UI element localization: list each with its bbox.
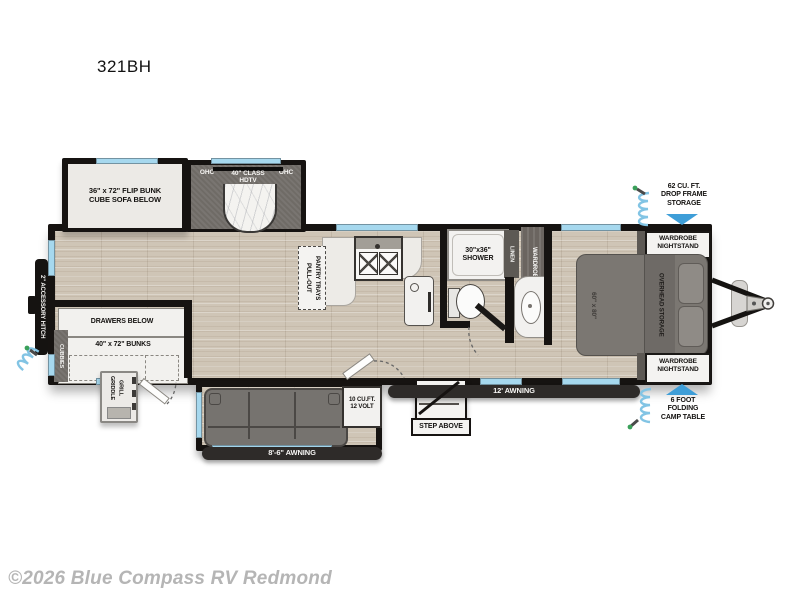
sofa xyxy=(204,388,348,447)
hitch-coupler xyxy=(747,296,772,311)
kitchen-appliance xyxy=(404,276,434,326)
sink-basin-right xyxy=(379,252,398,275)
drawers-label: DRAWERS BELOW xyxy=(91,318,153,326)
copyright-watermark: ©2026 Blue Compass RV Redmond xyxy=(8,568,332,590)
overhead-storage: OVERHEAD STORAGE xyxy=(644,255,675,355)
sofa-armrest xyxy=(209,393,221,405)
kitchen-sink xyxy=(354,236,403,281)
bath-wall-left xyxy=(440,231,447,327)
pantry: PULL-OUT PANTRY TRAYS xyxy=(298,246,326,310)
refrigerator: 10 CU.FT. 12 VOLT xyxy=(342,386,382,428)
bunkroom-wall-vertical xyxy=(184,300,192,378)
pillow-icon xyxy=(678,263,704,304)
pantry-label: PULL-OUT PANTRY TRAYS xyxy=(303,256,321,300)
step-above-tag: STEP ABOVE xyxy=(411,418,471,436)
vanity-drain-icon xyxy=(528,304,532,308)
appliance-dial-icon xyxy=(410,283,419,292)
overhead-storage-label: OVERHEAD STORAGE xyxy=(656,273,663,337)
propane-cover xyxy=(731,280,748,327)
accessory-hitch-bar: 2" ACCESSORY HITCH xyxy=(35,259,48,355)
shower: 30"x36" SHOWER xyxy=(447,229,509,281)
nightstand-trim-bottom xyxy=(637,353,645,380)
bunk-door-swing-arc xyxy=(167,382,176,404)
hitch-ball-icon xyxy=(763,298,774,309)
cubbies-cabinet: CUBBIES xyxy=(54,330,68,382)
bed-size: 60" x 80" xyxy=(585,275,601,335)
sink-basin-left xyxy=(359,252,378,275)
nightstand-trim-top xyxy=(637,231,645,255)
bunks-label: 40" x 72" BUNKS xyxy=(59,341,187,349)
accessory-hitch-label: 2" ACCESSORY HITCH xyxy=(38,275,45,339)
nightstand-bottom: WARDROBE NIGHTSTAND xyxy=(645,353,711,384)
bunk-divider xyxy=(145,355,147,379)
coil-hose-icon xyxy=(639,193,649,225)
cubbies-label: CUBBIES xyxy=(58,344,64,368)
sprayer-tip-icon xyxy=(628,425,633,430)
bath-wall-inner xyxy=(505,277,514,343)
flip-bunk-label2: CUBE SOFA BELOW xyxy=(89,196,161,205)
sofa-cushion-divider xyxy=(248,392,250,439)
hitch-ball-center xyxy=(766,302,769,305)
faucet-icon xyxy=(375,244,380,249)
awning-main-bar: 12' AWNING xyxy=(388,385,640,398)
tv-alcove xyxy=(223,184,277,233)
kitchen-counter-left xyxy=(322,237,356,306)
tv-label: 40" CLASS HDTV xyxy=(214,170,282,185)
hall-window xyxy=(480,378,522,385)
sofa-cushion-divider xyxy=(294,392,296,439)
arrow-up-icon xyxy=(666,384,698,395)
awning-rear-bar: 8'-6" AWNING xyxy=(202,447,382,460)
front-slide-window xyxy=(96,158,158,164)
bath-wall-stub xyxy=(440,321,470,328)
flip-bunk-slide-floor: 36" x 72" FLIP BUNK CUBE SOFA BELOW xyxy=(68,164,182,228)
griddle-label: GRIDDLE GRILL xyxy=(107,376,125,400)
pillow-icon xyxy=(678,306,704,347)
linen-label: LINEN xyxy=(508,246,514,262)
bath-vanity xyxy=(514,276,547,338)
griddle-knob xyxy=(132,403,136,410)
bunkroom-wall-horizontal xyxy=(55,300,192,307)
sprayer-tip-icon xyxy=(25,346,30,351)
drop-frame-storage-callout: 62 CU. FT. DROP FRAME STORAGE xyxy=(656,183,712,208)
linen-cabinet: LINEN xyxy=(504,230,519,278)
bed: OVERHEAD STORAGE 60" x 80" xyxy=(576,254,708,356)
entertainment-window xyxy=(211,158,281,164)
griddle-knob xyxy=(132,390,136,397)
step-line xyxy=(419,403,459,405)
bedroom-window-bottom xyxy=(562,378,620,385)
arrow-down-icon xyxy=(666,214,698,225)
griddle-knob xyxy=(132,377,136,384)
kitchen-window xyxy=(336,224,418,231)
sprayer-icon xyxy=(637,189,645,194)
bedroom-window-top xyxy=(561,224,621,231)
toilet-icon xyxy=(456,284,485,319)
camp-table-callout: 6 FOOT FOLDING CAMP TABLE xyxy=(650,397,716,422)
sofa-armrest xyxy=(328,393,340,405)
sofa-seat-line xyxy=(208,426,340,428)
page-title: 321BH xyxy=(97,57,151,77)
drawers-cabinet: DRAWERS BELOW xyxy=(58,308,186,337)
left-window-upper xyxy=(48,240,55,276)
appliance-handle xyxy=(428,292,431,312)
floorplan-page: 321BH ©2026 Blue Compass RV Redmond 36" … xyxy=(0,0,800,600)
left-window-lower xyxy=(48,354,55,376)
sprayer-icon xyxy=(631,420,638,426)
coupler-hole-icon xyxy=(752,302,756,306)
sofa-slide-window-side xyxy=(196,392,202,438)
bath-bedroom-wall xyxy=(544,224,552,345)
sprayer-tip-icon xyxy=(633,186,638,191)
griddle-surface xyxy=(107,407,131,419)
